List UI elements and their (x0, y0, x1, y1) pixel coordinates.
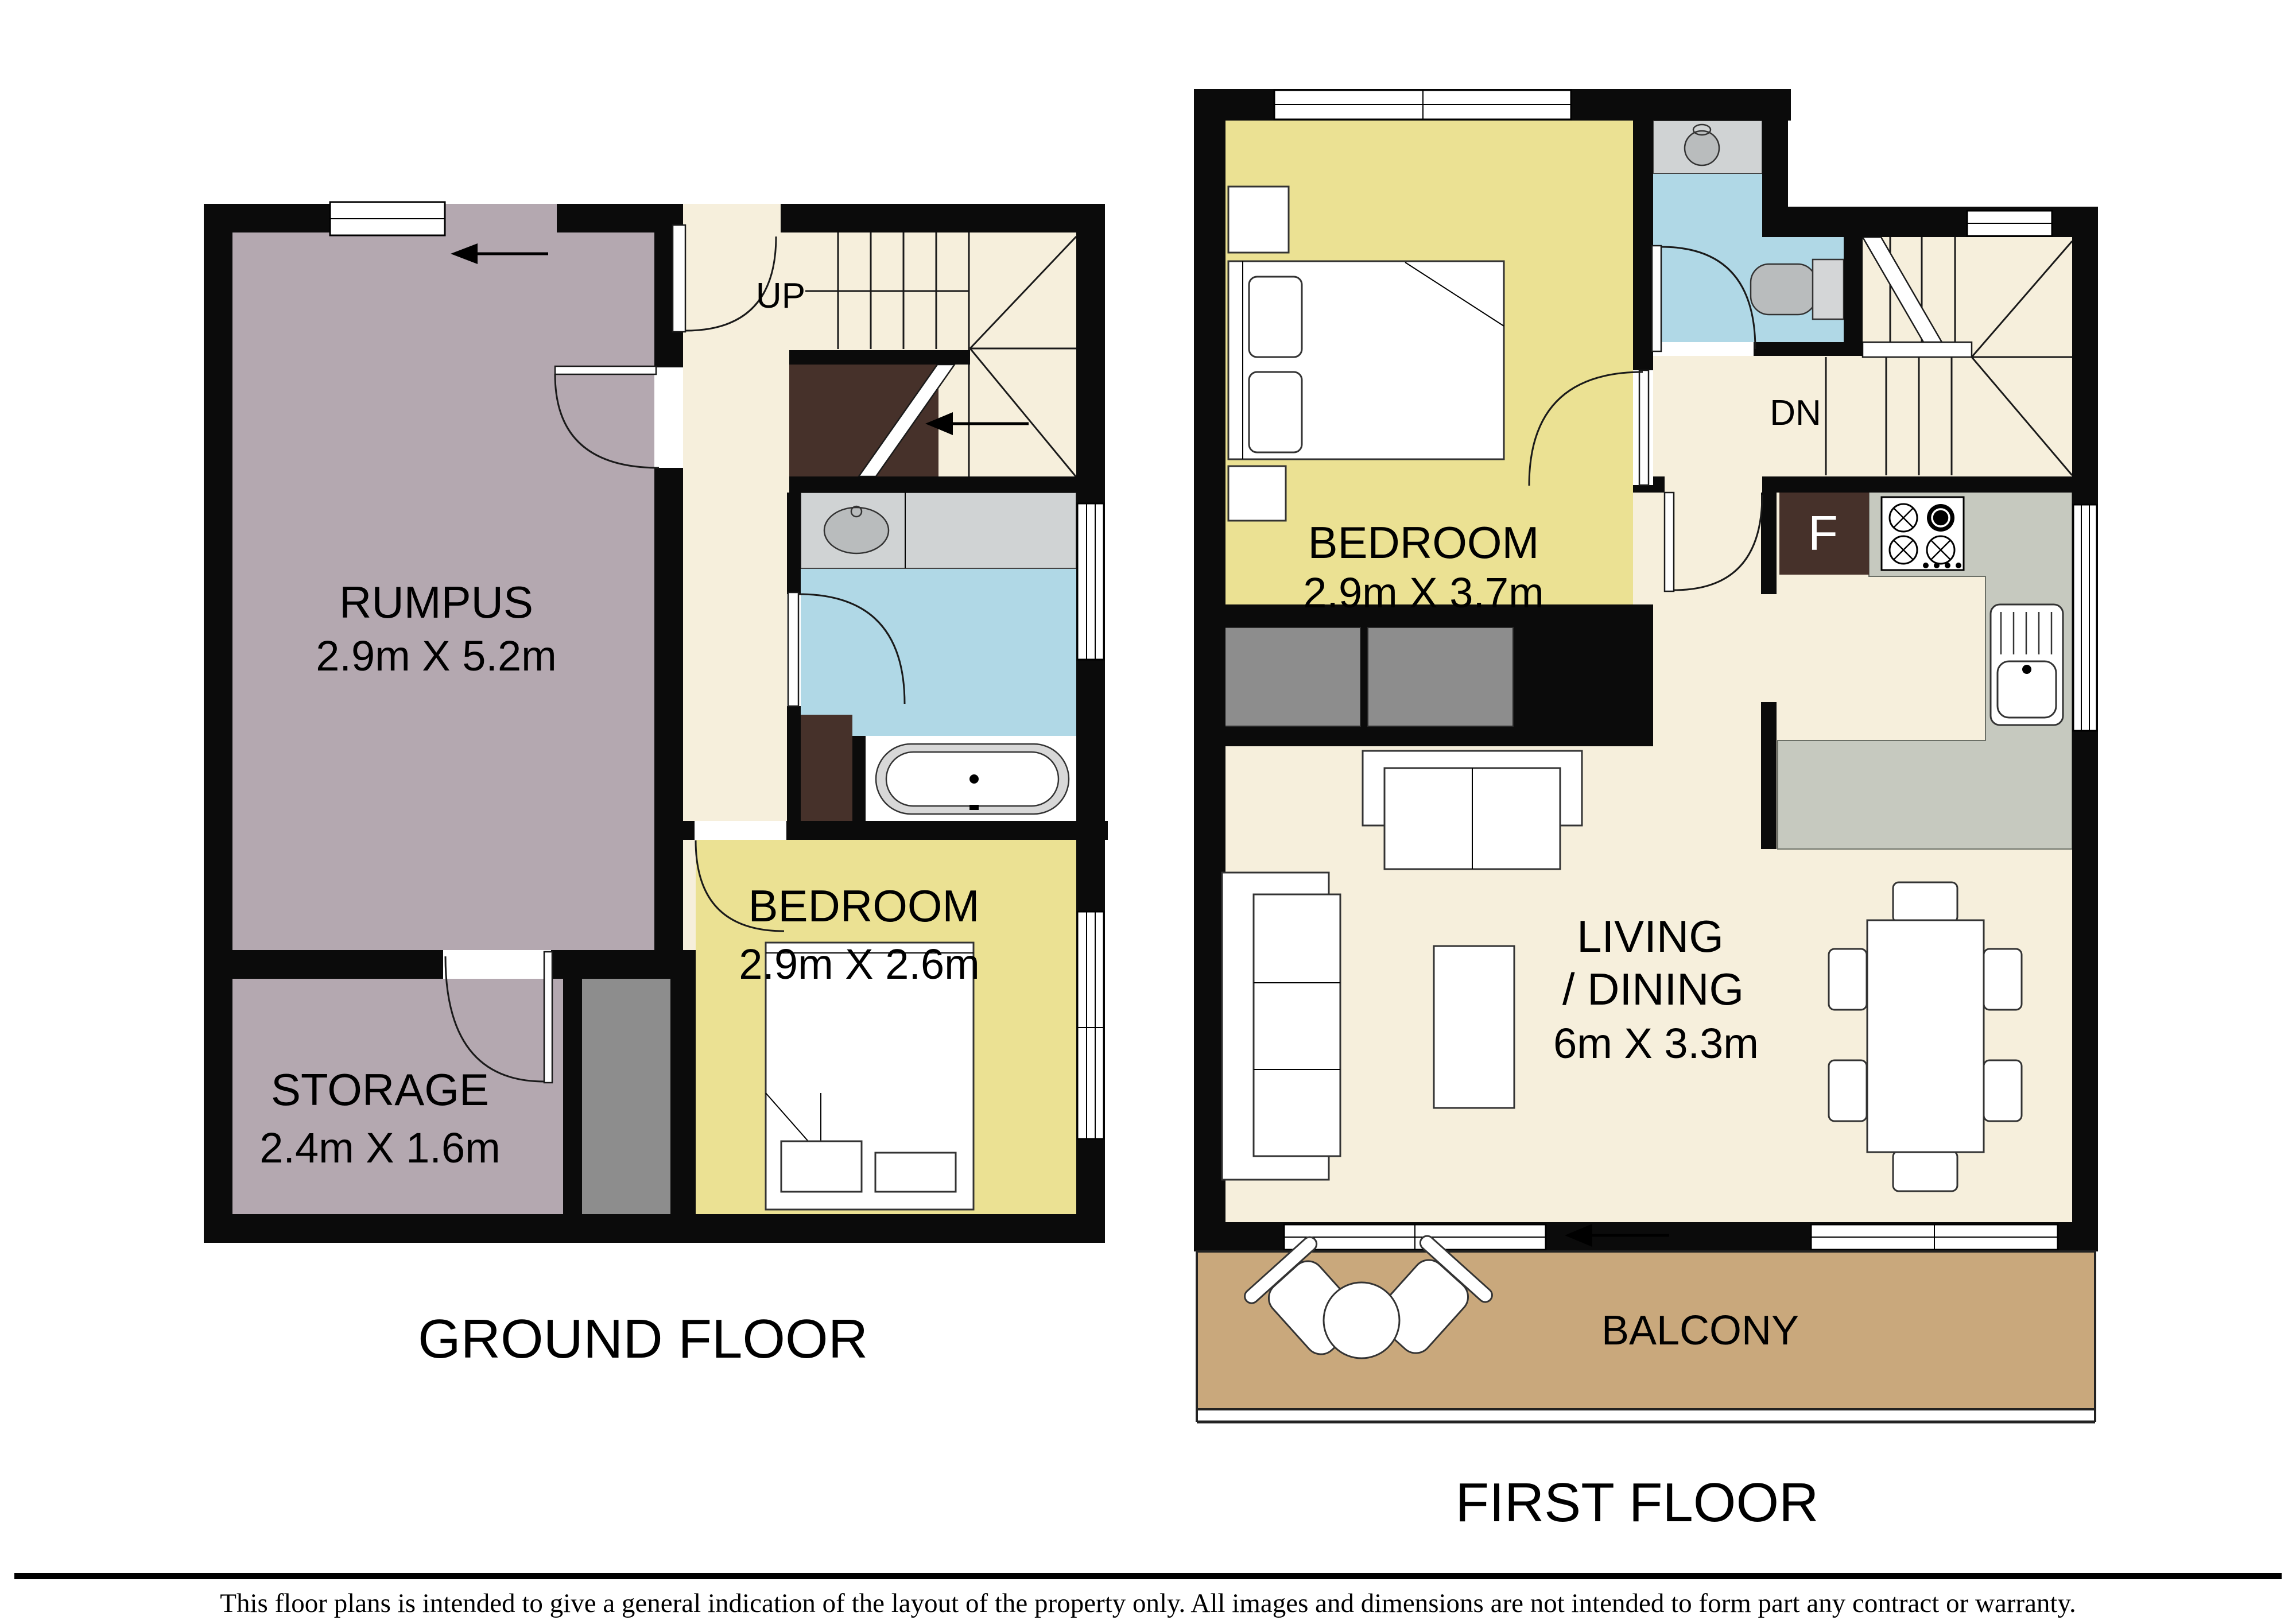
pillow-icon (1249, 372, 1302, 452)
gf-window-bathroom (1077, 503, 1104, 660)
gf-rumpus-label: RUMPUS (339, 577, 533, 627)
ff-window-bottom (1811, 1224, 2058, 1250)
gf-bedroom-dims: 2.9m X 2.6m (739, 940, 980, 988)
gf-sink-basin-icon (824, 507, 889, 553)
dining-table (1867, 920, 1984, 1152)
dining-chair (1893, 1151, 1957, 1191)
pillow-icon (1249, 277, 1302, 357)
ff-coffee-table (1434, 946, 1514, 1108)
ff-sofa (1222, 873, 1340, 1180)
ff-sink-basin-icon (1685, 131, 1719, 165)
ff-loveseat (1363, 751, 1582, 869)
dining-chair (1984, 949, 2022, 1010)
footer-disclaimer: This floor plans is intended to give a g… (220, 1588, 2076, 1618)
ff-bedroom-label: BEDROOM (1308, 517, 1539, 568)
stove-icon (1882, 497, 1964, 570)
dining-chair (1829, 1060, 1867, 1121)
footer: This floor plans is intended to give a g… (14, 1573, 2282, 1618)
gf-title: GROUND FLOOR (418, 1308, 868, 1370)
ff-fridge-label: F (1808, 506, 1838, 561)
gf-window-bedroom (1077, 912, 1104, 1139)
gf-rumpus-dims: 2.9m X 5.2m (316, 632, 557, 680)
dining-chair (1984, 1060, 2022, 1121)
ff-dining-label: / DINING (1562, 964, 1744, 1014)
footer-divider (14, 1573, 2282, 1579)
ff-built-in-robes (1194, 604, 1653, 746)
ground-floor-plan: RUMPUS 2.9m X 5.2m STORAGE 2.4m X 1.6m B… (204, 202, 1108, 1370)
ff-living-label: LIVING (1577, 911, 1724, 962)
ff-title: FIRST FLOOR (1456, 1472, 1819, 1533)
dining-chair (1829, 949, 1867, 1010)
gf-vanity (801, 493, 1076, 568)
ff-window-bedroom-top (1274, 90, 1571, 119)
nightstand (1228, 187, 1289, 253)
ff-balcony-slider (1284, 1224, 1546, 1250)
ff-exterior-notch (1785, 57, 2101, 208)
ff-window-stairs (1967, 211, 2052, 236)
gf-stairs-up-label: UP (756, 276, 805, 316)
ff-stair-landing (1863, 342, 1972, 357)
ff-living-dims: 6m X 3.3m (1553, 1020, 1759, 1067)
ff-toilet (1751, 259, 1844, 319)
floorplan-drawing: RUMPUS 2.9m X 5.2m STORAGE 2.4m X 1.6m B… (0, 0, 2296, 1624)
gf-storage-label: STORAGE (271, 1064, 489, 1115)
pillow-icon (781, 1141, 862, 1192)
first-floor-plan: BEDROOM 2.9m X 3.7m DN F LIVING / DINING… (1194, 57, 2101, 1533)
ff-bedroom-dims: 2.9m X 3.7m (1303, 569, 1544, 617)
gf-bedroom-label: BEDROOM (748, 881, 979, 931)
ff-stairs-dn-label: DN (1770, 393, 1821, 433)
pillow-icon (875, 1153, 956, 1192)
gf-storage-dims: 2.4m X 1.6m (259, 1124, 501, 1172)
kitchen-sink-icon (1991, 604, 2063, 725)
ff-vanity (1653, 121, 1762, 173)
balcony-table-icon (1324, 1282, 1399, 1358)
toilet-bowl-icon (1751, 264, 1816, 315)
floorplan-page: RUMPUS 2.9m X 5.2m STORAGE 2.4m X 1.6m B… (0, 0, 2296, 1624)
gf-window-top (330, 202, 445, 235)
ff-balcony-label: BALCONY (1601, 1308, 1799, 1354)
ff-window-kitchen (2073, 505, 2097, 731)
gf-bath (866, 736, 1076, 821)
toilet-tank-icon (1813, 259, 1844, 319)
gf-alcove-floor (582, 979, 670, 1214)
nightstand (1228, 466, 1286, 521)
dining-chair (1893, 882, 1957, 923)
